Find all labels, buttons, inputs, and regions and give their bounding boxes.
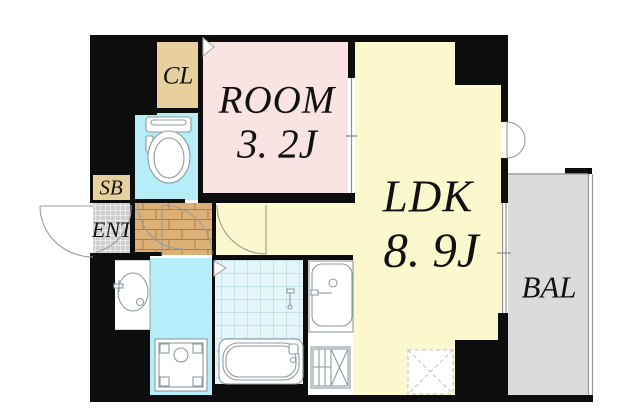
wall-left-mass-lower bbox=[90, 253, 115, 395]
bedroom-label: ROOM bbox=[219, 81, 336, 120]
wall-left-mass-upper bbox=[90, 42, 157, 115]
bedroom-size-label: 3. 2J bbox=[237, 124, 317, 165]
living-floor-strip bbox=[215, 203, 353, 255]
wall-south-of-strip bbox=[212, 255, 353, 260]
balcony-door-arc bbox=[507, 122, 525, 158]
kitchen-sink-icon bbox=[309, 261, 353, 332]
washing-machine-pan-icon bbox=[155, 339, 207, 391]
balcony-label: BAL bbox=[521, 272, 576, 303]
toilet-icon bbox=[146, 117, 191, 183]
pillar-top-right bbox=[455, 35, 508, 85]
wall-left-sb bbox=[90, 175, 93, 203]
wall-bath-kitchen bbox=[303, 255, 308, 395]
balcony-right-edge bbox=[589, 174, 593, 395]
wall-bath-bottom bbox=[212, 384, 308, 395]
wall-bedroom-living-top bbox=[348, 42, 355, 78]
wall-left-mass-mid bbox=[90, 113, 135, 175]
stove-icon bbox=[311, 347, 350, 388]
floor-plan-drawing bbox=[0, 0, 640, 413]
wall-balcony-top-tick bbox=[565, 168, 592, 174]
wall-closet-bottom bbox=[157, 108, 198, 113]
wall-step-bottom-right bbox=[455, 340, 498, 395]
wall-right-upper bbox=[501, 42, 508, 122]
entry-door-arc-outer bbox=[40, 206, 93, 257]
bathtub-icon bbox=[219, 339, 303, 384]
shoe-box-label: SB bbox=[99, 178, 122, 199]
living-size-label: 8. 9J bbox=[383, 226, 478, 275]
wall-closet-right bbox=[198, 42, 203, 203]
closet-label: CL bbox=[163, 64, 194, 89]
wall-right-lower bbox=[498, 313, 508, 395]
wall-bottom bbox=[90, 395, 593, 402]
wall-top bbox=[90, 35, 508, 42]
floor-hatch-icon bbox=[408, 350, 453, 394]
entrance-label: ENT bbox=[92, 219, 132, 241]
hallway-floor bbox=[135, 203, 212, 255]
wall-hall-bottom bbox=[133, 252, 162, 256]
wall-toilet-bottom bbox=[133, 199, 185, 203]
wall-bedroom-bottom bbox=[203, 193, 355, 203]
wall-hall-living bbox=[212, 203, 216, 255]
wall-right-mid bbox=[501, 158, 508, 203]
living-label: LDK bbox=[383, 175, 474, 220]
wall-sb-ent bbox=[90, 200, 135, 203]
wall-washbasin-below bbox=[113, 330, 150, 395]
floor-plan: CL SB ENT ROOM 3. 2J LDK 8. 9J BAL bbox=[0, 0, 640, 413]
